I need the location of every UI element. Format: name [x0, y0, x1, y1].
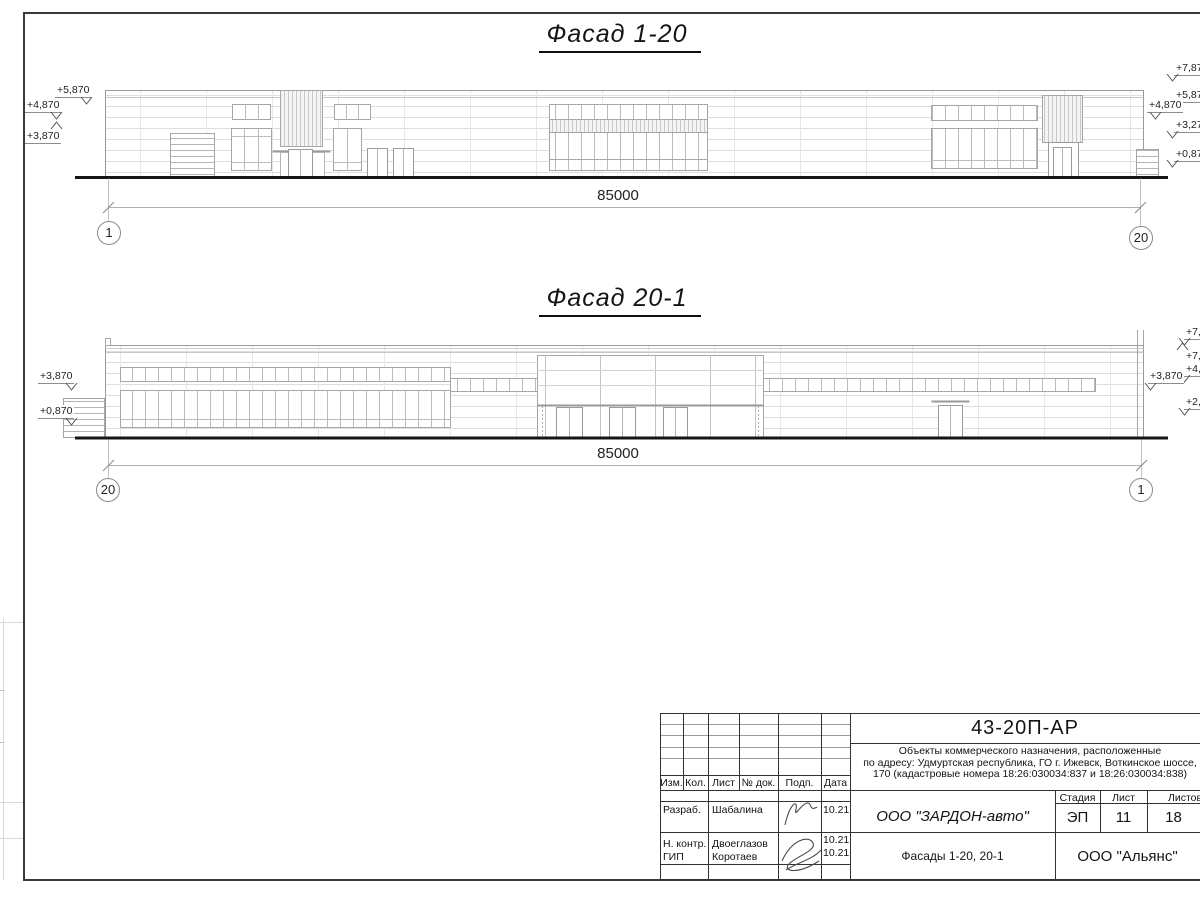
elevation-mark: +0,870 — [38, 405, 74, 419]
level-mark-icon — [1149, 112, 1162, 120]
staff-role: Разраб. — [663, 804, 701, 816]
elevation-mark: +7,870 — [1184, 350, 1200, 364]
elevation-mark: +7,870 — [1184, 326, 1200, 340]
elevation-mark: +4,870 — [25, 99, 61, 113]
staff-date: 10.21 — [823, 804, 849, 816]
design-org: ООО "Альянс" — [1055, 848, 1200, 865]
facade-20-1-dimension: 85000 — [558, 445, 678, 462]
level-mark-icon — [50, 112, 63, 120]
elevation-mark: +0,870 — [1174, 148, 1200, 162]
axis-bubble-1: 1 — [1129, 478, 1153, 502]
facade-1-20-dimension: 85000 — [558, 187, 678, 204]
staff-name: Двоеглазов — [712, 838, 768, 850]
elevation-mark: +3,870 — [38, 370, 74, 384]
facade-1-20-title: Фасад 1-20 — [539, 20, 702, 53]
facade-1-20-drawing — [75, 85, 1170, 245]
drawing-sheet: Фасад 1-20 — [0, 0, 1200, 900]
col-header-izm: Изм. — [660, 777, 683, 789]
level-mark-icon — [1178, 408, 1191, 416]
elevation-mark: +3,870 — [1148, 370, 1184, 384]
elevation-mark: +7,870 — [1174, 62, 1200, 76]
facade-20-1-title: Фасад 20-1 — [539, 284, 702, 317]
sheet-frame-top — [23, 12, 1200, 14]
elevation-mark: +4,870 — [1184, 363, 1200, 377]
elevation-mark: +3,870 — [25, 130, 61, 144]
doc-number: 43-20П-АР — [850, 717, 1200, 740]
elevation-mark: +4,870 — [1147, 99, 1183, 113]
sheet-label: Лист — [1100, 792, 1147, 804]
level-mark-icon — [1166, 74, 1179, 82]
facade-20-1-drawing — [55, 330, 1170, 505]
sheet-title: Фасады 1-20, 20-1 — [850, 849, 1055, 863]
description-line: Объекты коммерческого назначения, распол… — [850, 746, 1200, 758]
staff-date: 10.21 — [823, 834, 849, 846]
stage-value: ЭП — [1055, 809, 1100, 826]
level-mark-icon — [80, 97, 93, 105]
staff-name: Коротаев — [712, 851, 757, 863]
level-mark-icon — [1144, 383, 1157, 391]
sheets-label: Листов — [1147, 792, 1200, 804]
col-header-list: Лист — [708, 777, 739, 789]
title-block: 43-20П-АР Объекты коммерческого назначен… — [660, 713, 1200, 880]
elevation-mark: +3,270 — [1174, 119, 1200, 133]
axis-bubble-20: 20 — [1129, 226, 1153, 250]
col-header-podp: Подп. — [778, 777, 821, 789]
elevation-mark: +2,170 — [1184, 396, 1200, 410]
staff-role: ГИП — [663, 851, 684, 863]
stage-label: Стадия — [1055, 792, 1100, 804]
sheets-total: 18 — [1147, 809, 1200, 826]
level-mark-icon — [1166, 131, 1179, 139]
col-header-doc: № док. — [739, 777, 778, 789]
col-header-kol: Кол. — [683, 777, 708, 789]
signature — [778, 831, 824, 879]
facade-20-1-title-row: Фасад 20-1 — [20, 284, 1200, 317]
signature — [780, 797, 820, 831]
staff-date: 10.21 — [823, 847, 849, 859]
sheet-number: 11 — [1100, 809, 1147, 826]
elevation-mark: +5,870 — [55, 84, 91, 98]
level-mark-icon — [65, 383, 78, 391]
facade-1-20-title-row: Фасад 1-20 — [20, 20, 1200, 53]
axis-bubble-20: 20 — [96, 478, 120, 502]
description-line: 170 (кадастровые номера 18:26:030034:837… — [850, 769, 1200, 781]
level-mark-icon — [50, 121, 63, 129]
level-mark-icon — [1176, 342, 1189, 350]
level-mark-icon — [1166, 160, 1179, 168]
project-description: Объекты коммерческого назначения, распол… — [850, 746, 1200, 781]
col-header-date: Дата — [821, 777, 850, 789]
axis-bubble-1: 1 — [97, 221, 121, 245]
staff-role: Н. контр. — [663, 838, 706, 850]
customer-company: ООО "ЗАРДОН-авто" — [850, 808, 1055, 825]
staff-name: Шабалина — [712, 804, 763, 816]
level-mark-icon — [65, 418, 78, 426]
